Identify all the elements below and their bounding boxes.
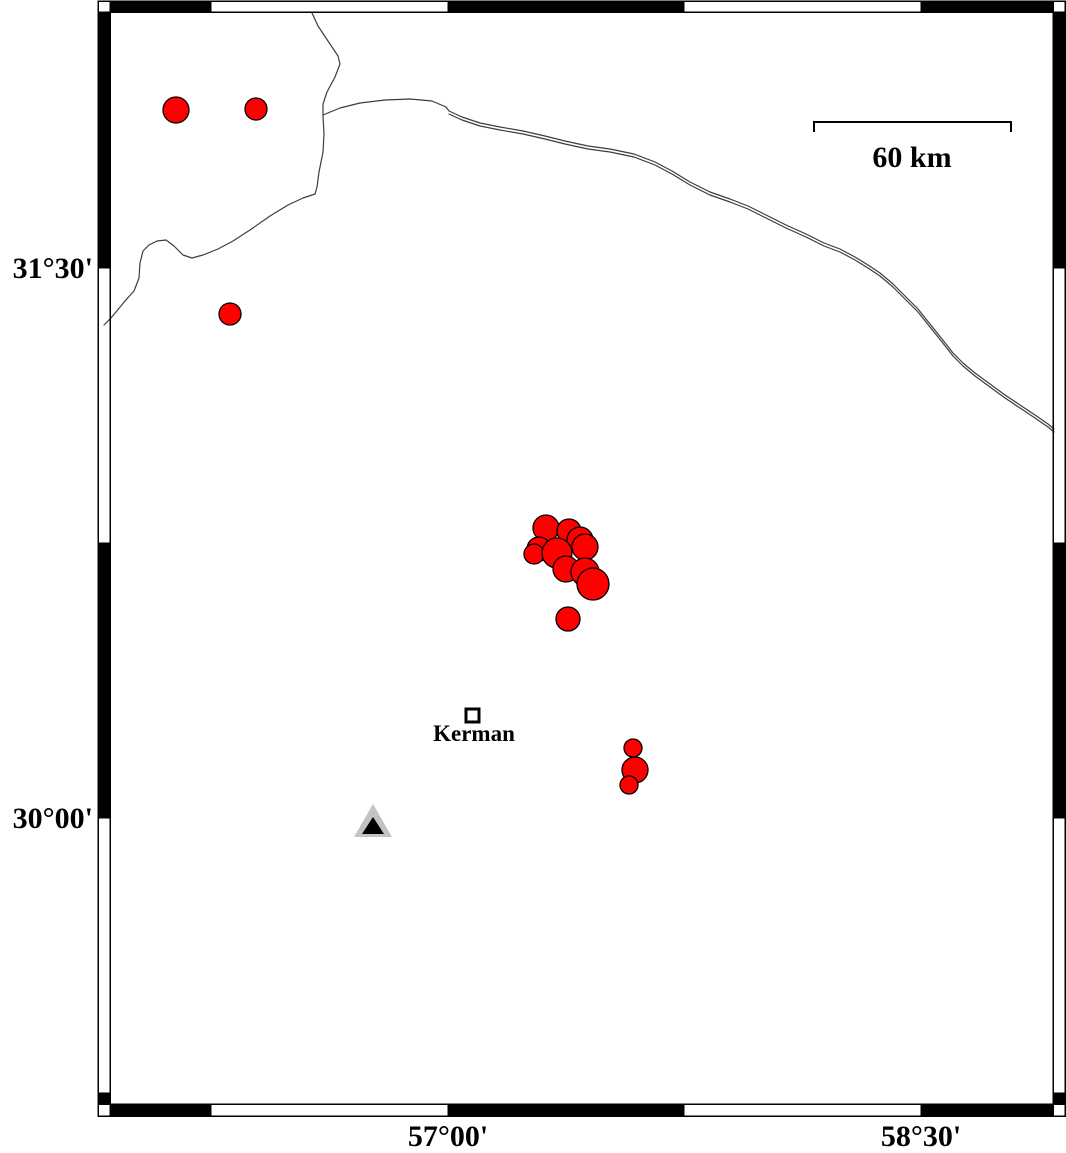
earthquake-marker — [556, 607, 580, 631]
latitude-label: 30°00' — [13, 802, 93, 835]
scale-bar: 60 km — [814, 122, 1011, 174]
longitude-label: 57°00' — [408, 1120, 488, 1153]
map-page: Kerman 60 km — [0, 0, 1066, 1153]
earthquake-layer — [163, 97, 648, 794]
earthquake-marker — [572, 534, 598, 560]
earthquake-marker — [524, 544, 544, 564]
map-canvas: Kerman 60 km — [0, 0, 1066, 1153]
latitude-label: 31°30' — [13, 252, 93, 285]
earthquake-marker — [245, 98, 267, 120]
latitude-labels: 31°30'30°00' — [13, 252, 93, 835]
city-kerman: Kerman — [433, 709, 515, 746]
earthquake-marker — [620, 776, 638, 794]
station-marker — [354, 804, 392, 837]
road-line-lower — [449, 114, 1054, 432]
border-line — [104, 13, 340, 325]
longitude-labels: 57°00'58°30' — [408, 1120, 961, 1153]
longitude-label: 58°30' — [881, 1120, 961, 1153]
earthquake-marker — [163, 97, 189, 123]
scale-bar-label: 60 km — [872, 141, 951, 174]
earthquake-marker — [624, 739, 642, 757]
map-lines-layer — [104, 13, 1054, 432]
earthquake-marker — [577, 568, 609, 600]
earthquake-marker — [219, 303, 241, 325]
scale-bar-bracket — [814, 122, 1011, 132]
city-label: Kerman — [433, 721, 515, 746]
